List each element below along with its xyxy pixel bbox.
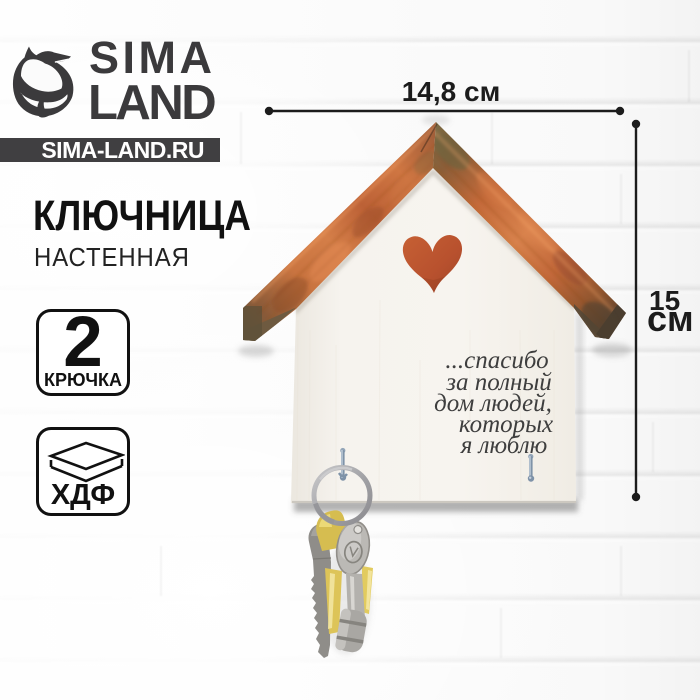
svg-text:14,8 см: 14,8 см <box>402 76 501 107</box>
svg-text:я люблю: я люблю <box>460 432 548 459</box>
svg-text:см: см <box>647 298 694 339</box>
